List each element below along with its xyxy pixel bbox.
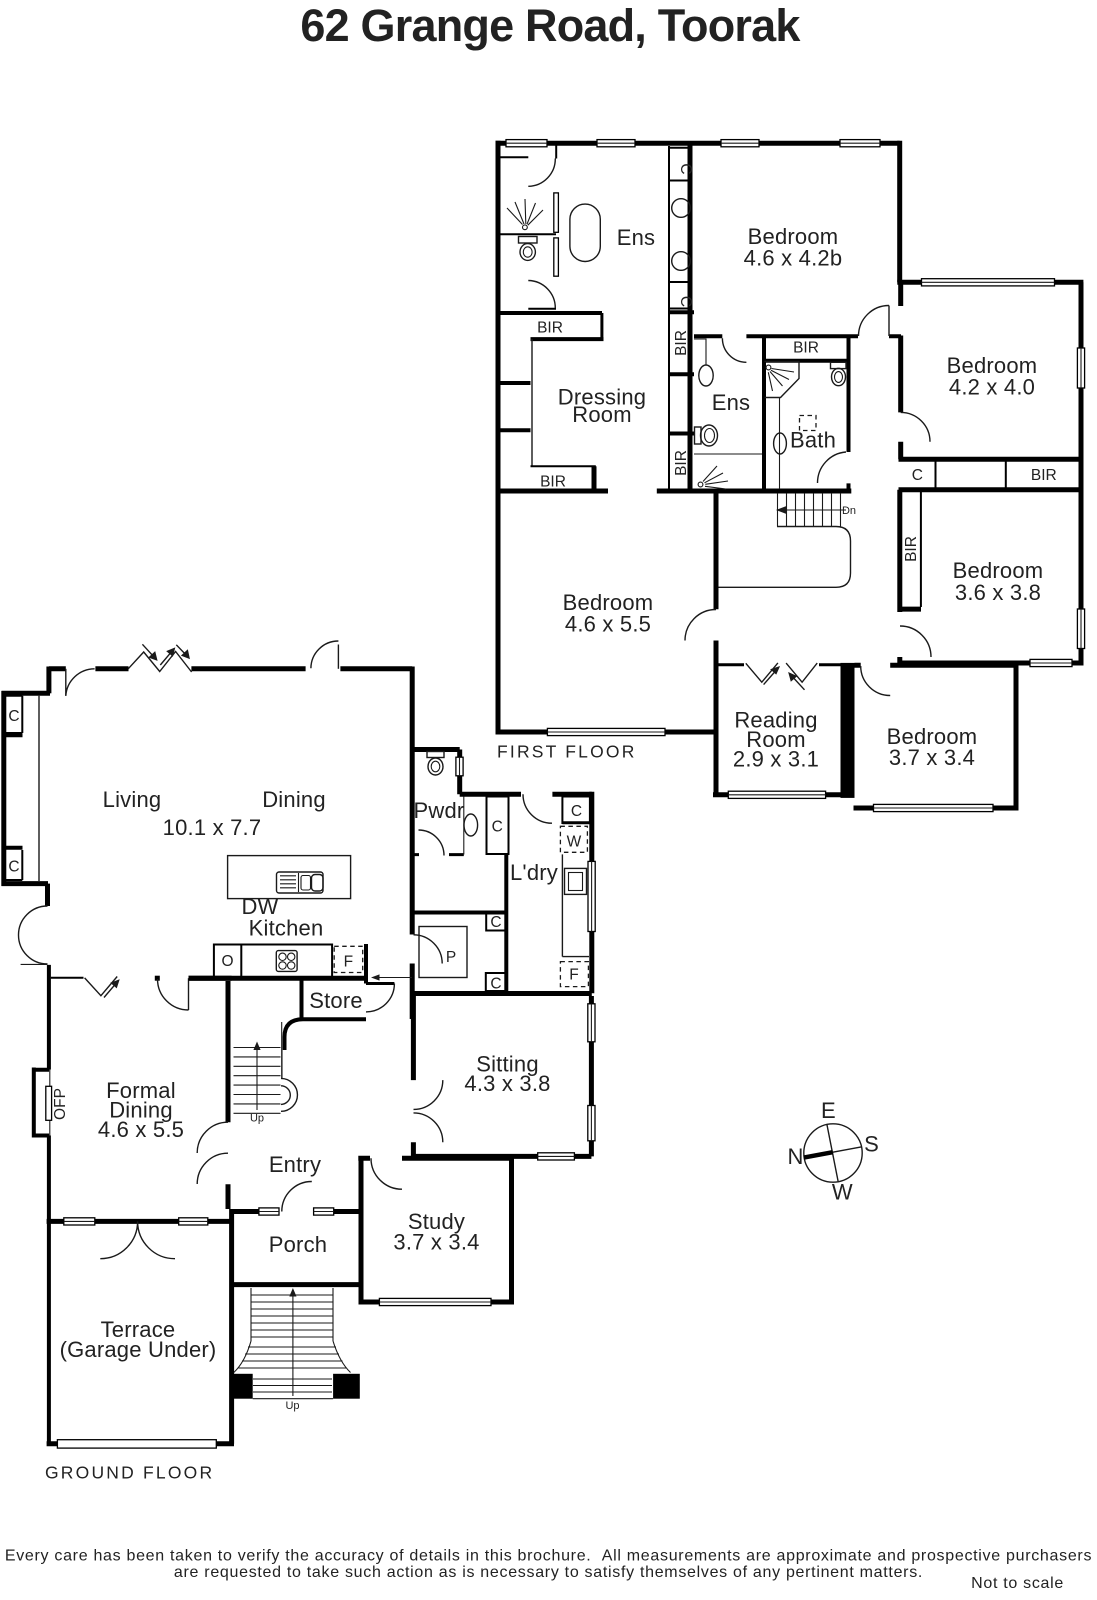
svg-text:3.7 x 3.4: 3.7 x 3.4 bbox=[393, 1230, 479, 1255]
svg-text:C: C bbox=[912, 467, 923, 484]
svg-text:BIR: BIR bbox=[673, 450, 690, 476]
svg-text:Not to scale: Not to scale bbox=[971, 1575, 1064, 1592]
svg-text:C: C bbox=[8, 859, 19, 876]
svg-text:Up: Up bbox=[250, 1113, 264, 1125]
svg-text:Pwdr: Pwdr bbox=[414, 798, 465, 823]
svg-text:BIR: BIR bbox=[537, 320, 563, 337]
svg-text:Dining: Dining bbox=[262, 787, 326, 812]
svg-text:Room: Room bbox=[572, 402, 632, 427]
svg-text:Every care has been taken to v: Every care has been taken to verify the … bbox=[5, 1548, 1092, 1565]
svg-text:C: C bbox=[571, 803, 582, 820]
svg-text:Dn: Dn bbox=[842, 505, 856, 517]
svg-text:Kitchen: Kitchen bbox=[249, 916, 324, 941]
svg-text:4.6 x 5.5: 4.6 x 5.5 bbox=[565, 612, 651, 637]
svg-text:Store: Store bbox=[309, 988, 363, 1013]
svg-text:BIR: BIR bbox=[1031, 467, 1057, 484]
svg-text:2.9 x 3.1: 2.9 x 3.1 bbox=[733, 747, 819, 772]
svg-text:3.7 x 3.4: 3.7 x 3.4 bbox=[889, 745, 975, 770]
svg-text:BIR: BIR bbox=[673, 330, 690, 356]
svg-text:4.6 x 5.5: 4.6 x 5.5 bbox=[98, 1117, 184, 1142]
svg-text:Up: Up bbox=[285, 1400, 299, 1412]
svg-text:FIRST FLOOR: FIRST FLOOR bbox=[497, 742, 637, 762]
svg-text:P: P bbox=[446, 949, 456, 966]
svg-text:BIR: BIR bbox=[540, 474, 566, 491]
svg-text:C: C bbox=[8, 708, 19, 725]
svg-text:F: F bbox=[344, 954, 353, 971]
svg-text:N: N bbox=[787, 1144, 803, 1169]
svg-text:BIR: BIR bbox=[903, 536, 920, 562]
svg-text:BIR: BIR bbox=[793, 340, 819, 357]
svg-text:Living: Living bbox=[103, 787, 162, 812]
svg-text:C: C bbox=[490, 914, 501, 931]
svg-text:4.6 x 4.2b: 4.6 x 4.2b bbox=[744, 246, 843, 271]
svg-text:Entry: Entry bbox=[269, 1152, 321, 1177]
svg-text:C: C bbox=[677, 296, 694, 307]
svg-text:E: E bbox=[821, 1098, 836, 1123]
svg-text:3.6 x 3.8: 3.6 x 3.8 bbox=[955, 580, 1041, 605]
svg-text:F: F bbox=[569, 967, 578, 984]
svg-text:4.2 x 4.0: 4.2 x 4.0 bbox=[949, 375, 1035, 400]
svg-text:OFP: OFP bbox=[52, 1088, 69, 1120]
svg-text:Porch: Porch bbox=[269, 1232, 327, 1257]
svg-text:C: C bbox=[677, 163, 694, 174]
svg-text:62 Grange Road, Toorak: 62 Grange Road, Toorak bbox=[300, 0, 801, 51]
svg-text:(Garage Under): (Garage Under) bbox=[60, 1337, 217, 1362]
svg-text:10.1 x 7.7: 10.1 x 7.7 bbox=[163, 815, 262, 840]
svg-text:4.3 x 3.8: 4.3 x 3.8 bbox=[464, 1071, 550, 1096]
svg-text:W: W bbox=[832, 1180, 853, 1205]
svg-text:GROUND FLOOR: GROUND FLOOR bbox=[45, 1463, 214, 1483]
svg-text:L'dry: L'dry bbox=[510, 860, 558, 885]
svg-text:W: W bbox=[567, 834, 582, 851]
svg-text:O: O bbox=[221, 953, 233, 970]
svg-text:S: S bbox=[864, 1132, 879, 1157]
svg-text:Ens: Ens bbox=[617, 225, 656, 250]
svg-text:Bath: Bath bbox=[790, 428, 836, 453]
svg-text:Ens: Ens bbox=[712, 390, 751, 415]
svg-text:C: C bbox=[492, 819, 503, 836]
svg-text:are requested to take such act: are requested to take such action as is … bbox=[174, 1564, 923, 1581]
svg-text:C: C bbox=[490, 976, 501, 993]
